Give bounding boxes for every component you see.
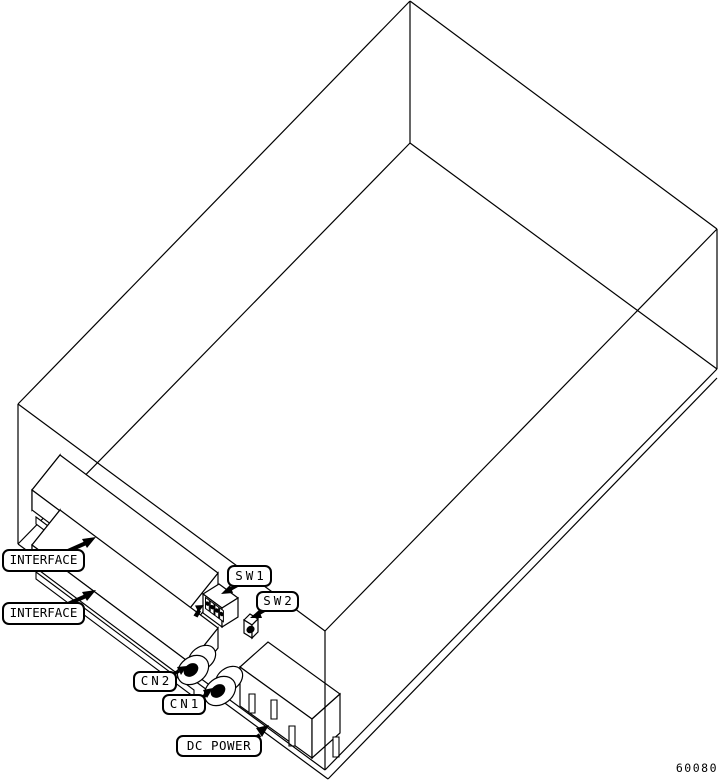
interface-label-2-text: INTERFACE (10, 607, 78, 620)
dc-power-pin-slot-3 (289, 726, 295, 746)
isometric-line-drawing (0, 0, 718, 783)
dc-power-label: DC POWER (176, 735, 262, 757)
cn2-label: CN2 (133, 671, 177, 692)
enclosure-bottom-back-right-edge (410, 143, 717, 369)
enclosure-top-back-right-edge (410, 1, 717, 229)
interface-label-1: INTERFACE (2, 549, 85, 572)
sw1-label: SW1 (227, 565, 272, 587)
interface-label-1-text: INTERFACE (10, 554, 78, 567)
cn1-label-text: CN1 (167, 698, 202, 711)
cn2-label-text: CN2 (138, 675, 173, 688)
sw2-label-text: SW2 (260, 595, 295, 608)
dc-power-pin-slot-4 (333, 737, 339, 757)
base-plate-right-edge (328, 378, 717, 779)
drawing-number: 60080 (672, 760, 718, 776)
sw1-label-text: SW1 (232, 570, 267, 583)
interface-label-2: INTERFACE (2, 602, 85, 625)
drawing-number-text: 60080 (676, 761, 718, 775)
cn1-label: CN1 (162, 694, 206, 715)
dc-power-pin-slot-1 (249, 694, 255, 713)
sw2-label: SW2 (256, 591, 299, 612)
dc-power-pin-slot-2 (271, 700, 277, 719)
dc-power-label-text: DC POWER (187, 740, 251, 753)
technical-diagram-canvas: INTERFACE INTERFACE SW1 SW2 CN2 CN1 DC P… (0, 0, 718, 783)
